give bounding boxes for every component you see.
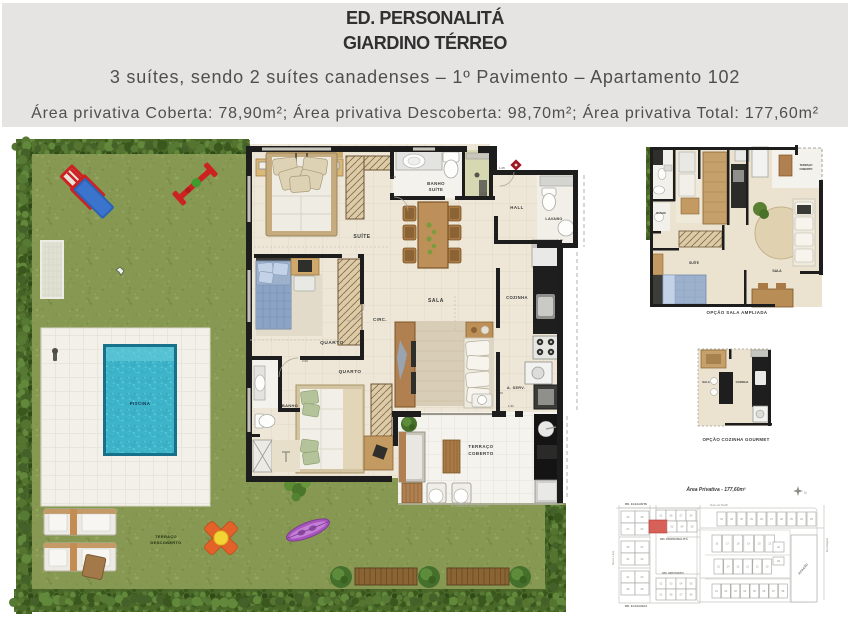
svg-text:1.99: 1.99	[390, 175, 396, 179]
svg-text:QUARTO: QUARTO	[339, 369, 362, 374]
svg-text:Rua A. Lima: Rua A. Lima	[611, 550, 615, 565]
svg-text:Rua Luiz Rodifi: Rua Luiz Rodifi	[710, 503, 728, 507]
svg-text:N: N	[804, 491, 807, 495]
svg-text:A. SERV.: A. SERV.	[507, 386, 525, 390]
svg-text:SUÍTE: SUÍTE	[689, 260, 700, 265]
svg-text:COBERTO: COBERTO	[800, 167, 813, 171]
svg-text:SUÍTE: SUÍTE	[353, 232, 370, 240]
svg-text:BANHO: BANHO	[656, 211, 666, 215]
svg-text:DI LORENZO ARQUITETURA: DI LORENZO ARQUITETURA	[451, 504, 489, 508]
svg-text:TERRAÇO: TERRAÇO	[468, 444, 493, 449]
svg-text:SALA: SALA	[772, 269, 782, 273]
svg-text:HALL: HALL	[510, 205, 523, 210]
svg-text:DESCOBERTO: DESCOBERTO	[150, 540, 181, 545]
svg-text:SALA: SALA	[428, 298, 444, 304]
svg-text:LAVABO: LAVABO	[545, 217, 562, 221]
svg-text:TERRAÇO: TERRAÇO	[155, 534, 177, 539]
svg-text:Área Privativa - 177,60m²: Área Privativa - 177,60m²	[685, 486, 746, 493]
svg-text:BANHO: BANHO	[427, 181, 445, 186]
svg-text:1.25: 1.25	[499, 166, 505, 170]
svg-text:PISCINA: PISCINA	[130, 401, 151, 406]
svg-text:2.70: 2.70	[481, 192, 487, 196]
svg-text:COZINHA: COZINHA	[736, 380, 749, 384]
svg-text:2.00: 2.00	[302, 359, 308, 363]
svg-text:RD. PERSONALITÁ: RD. PERSONALITÁ	[660, 536, 688, 541]
svg-text:RD. ELEGANTE: RD. ELEGANTE	[625, 502, 647, 506]
svg-text:COZINHA: COZINHA	[506, 295, 528, 300]
svg-text:OPÇÃO SALA AMPLIADA: OPÇÃO SALA AMPLIADA	[707, 310, 768, 315]
svg-text:OPÇÃO COZINHA GOURMET: OPÇÃO COZINHA GOURMET	[702, 437, 769, 442]
svg-text:RD. MOTIVATO: RD. MOTIVATO	[662, 571, 684, 575]
svg-text:QUARTO: QUARTO	[320, 340, 344, 346]
svg-text:1.92: 1.92	[508, 404, 514, 408]
svg-text:COBERTO: COBERTO	[468, 451, 493, 456]
svg-text:SUÍTE: SUÍTE	[429, 187, 444, 192]
svg-text:SALA: SALA	[702, 380, 710, 384]
svg-text:Rua Wagner: Rua Wagner	[825, 538, 829, 553]
svg-text:BANHO: BANHO	[282, 403, 298, 408]
svg-text:CIRC.: CIRC.	[373, 317, 387, 322]
svg-text:TERRAÇO: TERRAÇO	[800, 163, 813, 167]
svg-text:RD. ELEGANZA: RD. ELEGANZA	[625, 604, 648, 608]
